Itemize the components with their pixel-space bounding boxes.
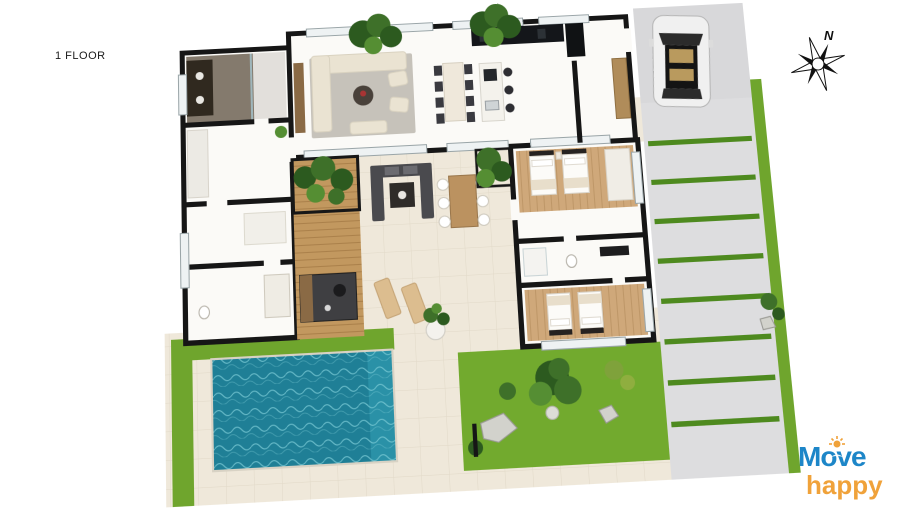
bedroom-2 <box>524 284 648 342</box>
floorplan-svg <box>140 0 809 515</box>
cooktop <box>483 69 497 82</box>
outdoor-kitchen-grill <box>300 273 358 323</box>
vanity <box>600 245 630 256</box>
fridge <box>565 23 585 57</box>
bedroom-1 <box>516 145 638 213</box>
render-canvas: 1 FLOOR <box>0 0 900 515</box>
outdoor-table <box>449 175 479 228</box>
ottoman <box>350 120 387 134</box>
wardrobe <box>605 148 634 200</box>
shower <box>523 248 548 276</box>
windshield <box>659 33 703 46</box>
brand-logo: Move happy <box>796 436 900 500</box>
dining-table <box>443 62 466 121</box>
compass-rose: N <box>788 28 848 94</box>
floorplan-3d-scene <box>140 0 809 515</box>
compass-north-label: N <box>824 28 834 43</box>
floor-label: 1 FLOOR <box>55 50 106 62</box>
vanity <box>186 60 213 117</box>
living-room <box>293 51 416 139</box>
bathroom-top <box>186 52 287 123</box>
armchair <box>388 70 408 87</box>
sofa-left <box>311 55 332 132</box>
armchair <box>389 97 409 113</box>
sink <box>485 101 499 111</box>
toilet <box>199 306 210 319</box>
toilet <box>566 255 577 268</box>
car <box>649 15 715 107</box>
logo-word-bottom: happy <box>806 470 883 500</box>
swimming-pool <box>211 350 397 472</box>
